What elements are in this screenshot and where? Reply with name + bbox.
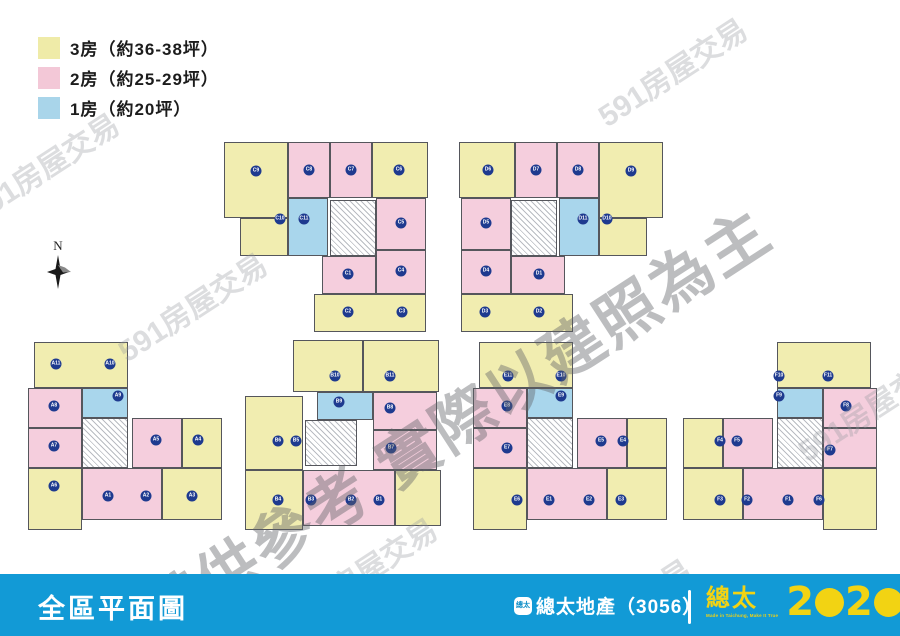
elevator-core [305,420,357,466]
compass-north-label: N [40,238,76,254]
year-zero-circle [815,588,844,617]
unit-badge: F9 [774,391,785,402]
unit-badge: F10 [774,371,785,382]
unit-badge: A8 [49,401,60,412]
unit-3room [245,396,303,470]
unit-3room [607,468,667,520]
unit-1room [527,388,573,418]
legend-item-1room: 1房（約20坪） [38,96,219,119]
unit-badge: D8 [573,165,584,176]
unit-badge: D9 [626,166,637,177]
unit-3room [293,340,363,392]
elevator-core [330,200,376,256]
floor-plan-page: 3房（約36-38坪） 2房（約25-29坪） 1房（約20坪） N C9C8C… [0,0,900,636]
unit-3room [28,468,82,530]
legend-label-1room: 1房（約20坪） [70,95,191,120]
unit-badge: D10 [602,214,613,225]
unit-badge: E4 [618,436,629,447]
unit-badge: D6 [483,165,494,176]
unit-badge: E1 [544,495,555,506]
unit-badge: D5 [481,218,492,229]
legend-label-2room: 2房（約25-29坪） [70,65,219,90]
unit-badge: D3 [480,307,491,318]
unit-1room [559,198,599,256]
year-digit: 2 [786,583,814,621]
unit-badge: C5 [396,218,407,229]
unit-3room [683,468,743,520]
unit-3room [461,294,573,332]
unit-2room [473,388,527,428]
unit-badge: F5 [732,436,743,447]
unit-badge: F4 [715,436,726,447]
unit-badge: E10 [556,371,567,382]
legend: 3房（約36-38坪） 2房（約25-29坪） 1房（約20坪） [38,36,219,126]
unit-badge: C6 [394,165,405,176]
legend-swatch-3room [38,37,60,59]
unit-badge: E9 [556,391,567,402]
unit-badge: A6 [49,481,60,492]
legend-item-2room: 2房（約25-29坪） [38,66,219,89]
unit-badge: A7 [49,441,60,452]
unit-badge: B1 [374,495,385,506]
company-name: 總太地產（3056） [536,592,702,619]
elevator-core [777,418,823,468]
year-digit: 2 [845,583,873,621]
unit-3room [599,142,663,218]
unit-1room [288,198,328,256]
unit-badge: F7 [825,445,836,456]
unit-2room [743,468,823,520]
unit-badge: E3 [616,495,627,506]
elevator-core [511,200,557,256]
unit-badge: B2 [346,495,357,506]
compass-star-icon [45,255,71,289]
unit-badge: E11 [503,371,514,382]
unit-badge: C2 [343,307,354,318]
unit-badge: C11 [299,214,310,225]
unit-badge: C9 [251,166,262,177]
legend-swatch-2room [38,67,60,89]
watermark-591: 591房屋交易 [588,6,755,136]
unit-badge: F8 [841,401,852,412]
unit-badge: F6 [814,495,825,506]
unit-badge: B9 [334,397,345,408]
footer-bar: 全區平面圖 總太 總太地產（3056） 總太 Made in Taichung,… [0,574,900,636]
unit-3room [627,418,667,468]
legend-swatch-1room [38,97,60,119]
brand-tagline: Made in Taichung, Make It True [706,613,778,618]
unit-badge: B6 [273,436,284,447]
brand-name: 總太 [706,587,778,611]
unit-2room [373,430,437,470]
building-F: F10F11F9F8F7F4F5F3F2F1F6 [680,340,885,540]
unit-badge: E5 [596,436,607,447]
unit-badge: D1 [534,269,545,280]
unit-3room [314,294,426,332]
unit-3room [777,342,871,388]
unit-badge: C10 [275,214,286,225]
unit-badge: A2 [141,491,152,502]
unit-1room [317,392,373,420]
unit-badge: C3 [397,307,408,318]
brand-year-2020: 22 [786,582,900,622]
unit-badge: A3 [187,491,198,502]
elevator-core [82,418,128,468]
unit-badge: A5 [151,435,162,446]
elevator-core [527,418,573,468]
unit-3room [363,340,439,392]
unit-3room [224,142,288,218]
unit-badge: F1 [783,495,794,506]
unit-badge: A1 [103,491,114,502]
unit-badge: F3 [715,495,726,506]
building-D: D9D8D7D6D10D11D5D4D1D2D3 [455,126,669,338]
unit-badge: B11 [385,371,396,382]
unit-badge: E2 [584,495,595,506]
unit-badge: A4 [193,435,204,446]
unit-badge: A9 [113,391,124,402]
unit-badge: B10 [330,371,341,382]
unit-badge: C7 [346,165,357,176]
unit-badge: E8 [502,401,513,412]
unit-badge: E7 [502,443,513,454]
building-E: E11E10E9E8E7E5E4E6E1E2E3 [465,340,670,540]
unit-badge: A11 [51,359,62,370]
legend-item-3room: 3房（約36-38坪） [38,36,219,59]
unit-badge: B4 [273,495,284,506]
unit-badge: C1 [343,269,354,280]
unit-badge: C8 [304,165,315,176]
brand-left: 總太 Made in Taichung, Make It True [706,587,778,618]
brand-logo: 總太 Made in Taichung, Make It True 22 [706,582,900,622]
unit-badge: D4 [481,266,492,277]
unit-badge: F2 [742,495,753,506]
building-C: C9C8C7C6C10C11C5C4C1C2C3 [218,126,432,338]
unit-3room [823,468,877,530]
company-block: 總太 總太地產（3056） [514,592,702,619]
unit-2room [373,392,437,430]
footer-divider [688,590,691,624]
building-B: B10B11B9B8B7B6B5B4B3B2B1 [245,340,445,540]
unit-2room [527,468,607,520]
unit-badge: B8 [385,403,396,414]
unit-2room [473,428,527,468]
unit-badge: B7 [386,443,397,454]
building-A: A11A10A9A8A7A6A5A4A1A2A3 [20,340,225,540]
unit-badge: C4 [396,266,407,277]
unit-badge: B3 [306,495,317,506]
page-title: 全區平面圖 [38,587,188,626]
year-zero-circle [874,588,900,617]
unit-badge: D7 [531,165,542,176]
unit-badge: D11 [578,214,589,225]
unit-3room [395,470,441,526]
unit-badge: B5 [291,436,302,447]
company-seal-icon: 總太 [514,597,532,615]
unit-badge: F11 [823,371,834,382]
legend-label-3room: 3房（約36-38坪） [70,35,219,60]
unit-2room [723,418,773,468]
compass: N [40,238,76,289]
unit-badge: D2 [534,307,545,318]
unit-badge: E6 [512,495,523,506]
unit-badge: A10 [105,359,116,370]
